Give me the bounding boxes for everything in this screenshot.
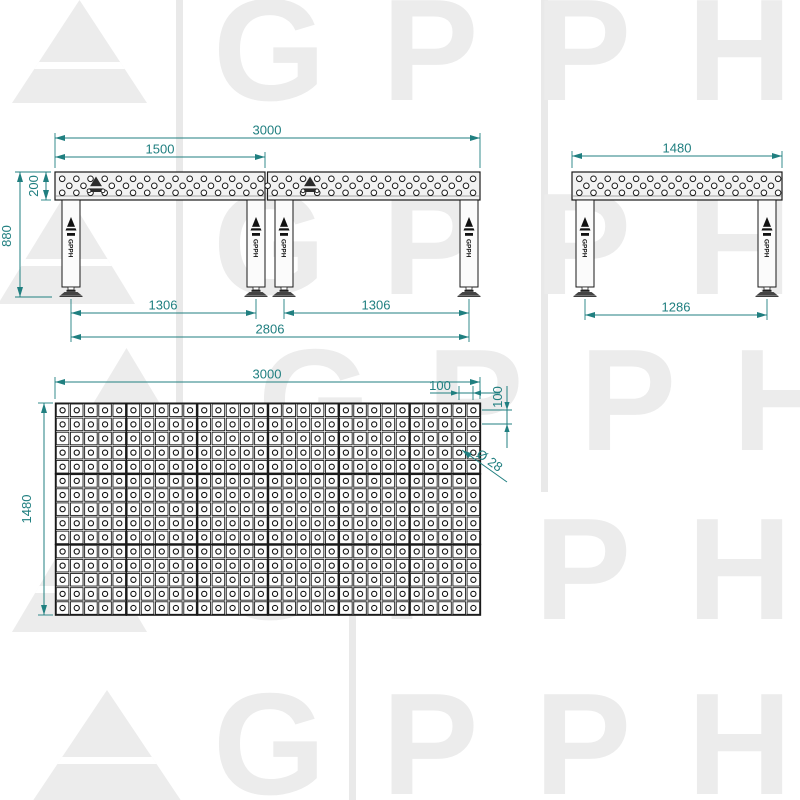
system-hole: [230, 450, 235, 455]
system-hole: [457, 408, 462, 413]
system-hole: [343, 408, 348, 413]
system-hole: [315, 450, 320, 455]
system-hole: [343, 436, 348, 441]
edge-hole: [180, 183, 186, 189]
edge-hole: [350, 183, 356, 189]
system-hole: [216, 535, 221, 540]
system-hole: [357, 492, 362, 497]
system-hole: [272, 605, 277, 610]
system-hole: [216, 478, 221, 483]
dim-label-1480-side: 1480: [663, 141, 692, 156]
edge-hole: [130, 190, 136, 196]
system-hole: [145, 422, 150, 427]
leg-logo-text: GPPH: [581, 239, 588, 258]
system-hole: [287, 450, 292, 455]
edge-hole: [357, 176, 363, 182]
leg-logo-text: GPPH: [465, 239, 472, 258]
system-hole: [258, 464, 263, 469]
system-hole: [74, 436, 79, 441]
system-hole: [131, 563, 136, 568]
system-hole: [329, 492, 334, 497]
edge-hole: [74, 190, 80, 196]
system-hole: [258, 478, 263, 483]
system-hole: [187, 577, 192, 582]
system-hole: [230, 464, 235, 469]
system-hole: [258, 591, 263, 596]
system-hole: [428, 507, 433, 512]
edge-hole: [258, 190, 264, 196]
system-hole: [287, 563, 292, 568]
system-hole: [400, 436, 405, 441]
edge-hole: [123, 183, 129, 189]
system-hole: [159, 591, 164, 596]
edge-hole: [343, 190, 349, 196]
system-hole: [400, 507, 405, 512]
edge-hole: [605, 176, 611, 182]
system-hole: [272, 436, 277, 441]
edge-hole: [421, 183, 427, 189]
edge-hole: [222, 183, 228, 189]
system-hole: [414, 591, 419, 596]
system-hole: [372, 535, 377, 540]
system-hole: [372, 591, 377, 596]
cad-sheet: GPPH GPPH GPPH GPPH GPPH: [0, 0, 800, 800]
system-hole: [357, 563, 362, 568]
system-hole: [471, 521, 476, 526]
system-hole: [74, 422, 79, 427]
system-hole: [442, 521, 447, 526]
edge-hole: [662, 190, 668, 196]
technical-drawing: GPPHGPPHGPPHGPPH: [0, 0, 800, 800]
system-hole: [400, 464, 405, 469]
system-hole: [428, 422, 433, 427]
edge-hole: [761, 190, 767, 196]
system-hole: [244, 507, 249, 512]
leg-logo-bar: [280, 233, 288, 236]
system-hole: [357, 408, 362, 413]
system-hole: [202, 591, 207, 596]
system-hole: [88, 464, 93, 469]
system-hole: [88, 422, 93, 427]
system-hole: [230, 422, 235, 427]
system-hole: [457, 605, 462, 610]
system-hole: [357, 549, 362, 554]
foot-nut: [280, 290, 289, 292]
system-hole: [131, 549, 136, 554]
edge-hole: [577, 190, 583, 196]
side-legs: GPPHGPPH: [574, 200, 779, 296]
edge-hole: [159, 190, 165, 196]
edge-hole: [598, 183, 604, 189]
system-hole: [400, 591, 405, 596]
system-hole: [230, 492, 235, 497]
system-hole: [102, 577, 107, 582]
system-hole: [187, 464, 192, 469]
edge-hole: [591, 176, 597, 182]
system-hole: [117, 422, 122, 427]
edge-hole: [173, 176, 179, 182]
system-hole: [343, 563, 348, 568]
edge-hole: [577, 176, 583, 182]
edge-hole: [87, 189, 91, 193]
edge-hole: [109, 183, 115, 189]
system-hole: [117, 436, 122, 441]
edge-hole: [101, 189, 105, 193]
system-hole: [216, 549, 221, 554]
leg-logo-text: GPPH: [67, 239, 74, 258]
system-hole: [400, 492, 405, 497]
system-hole: [117, 605, 122, 610]
system-hole: [428, 521, 433, 526]
system-hole: [244, 521, 249, 526]
system-hole: [272, 591, 277, 596]
edge-hole: [683, 183, 689, 189]
system-hole: [343, 521, 348, 526]
system-hole: [301, 549, 306, 554]
system-hole: [88, 521, 93, 526]
system-hole: [343, 535, 348, 540]
system-hole: [414, 408, 419, 413]
system-hole: [131, 577, 136, 582]
system-hole: [343, 450, 348, 455]
system-hole: [428, 605, 433, 610]
system-hole: [329, 521, 334, 526]
system-hole: [102, 422, 107, 427]
system-hole: [287, 464, 292, 469]
edge-hole: [265, 183, 271, 189]
system-hole: [145, 478, 150, 483]
edge-hole: [229, 176, 235, 182]
system-hole: [60, 422, 65, 427]
system-hole: [301, 577, 306, 582]
system-hole: [60, 464, 65, 469]
side-view: GPPHGPPH 1480 1286: [572, 141, 782, 321]
system-hole: [173, 422, 178, 427]
system-hole: [88, 408, 93, 413]
edge-hole: [229, 190, 235, 196]
edge-hole: [371, 190, 377, 196]
system-hole: [301, 535, 306, 540]
system-hole: [102, 492, 107, 497]
system-hole: [202, 422, 207, 427]
dim-label-200: 200: [26, 175, 41, 197]
system-hole: [372, 478, 377, 483]
edge-hole: [88, 176, 94, 182]
system-hole: [117, 464, 122, 469]
system-hole: [102, 464, 107, 469]
system-hole: [287, 408, 292, 413]
system-hole: [173, 436, 178, 441]
system-hole: [102, 549, 107, 554]
system-hole: [428, 591, 433, 596]
system-hole: [187, 605, 192, 610]
system-hole: [357, 422, 362, 427]
system-hole: [117, 535, 122, 540]
edge-hole: [733, 190, 739, 196]
system-hole: [357, 507, 362, 512]
system-hole: [301, 563, 306, 568]
system-hole: [414, 464, 419, 469]
system-hole: [301, 492, 306, 497]
system-hole: [471, 549, 476, 554]
system-hole: [187, 521, 192, 526]
dim-label-1306-left: 1306: [149, 298, 178, 313]
edge-hole: [137, 183, 143, 189]
foot-nut: [67, 290, 76, 292]
edge-hole: [385, 190, 391, 196]
system-hole: [315, 422, 320, 427]
system-hole: [202, 450, 207, 455]
foot-nut: [581, 290, 590, 292]
edge-hole: [74, 176, 80, 182]
system-hole: [74, 492, 79, 497]
edge-hole: [640, 183, 646, 189]
system-hole: [287, 605, 292, 610]
system-hole: [102, 591, 107, 596]
edge-hole: [392, 183, 398, 189]
system-hole: [315, 591, 320, 596]
edge-hole: [690, 190, 696, 196]
leg-logo-bar: [67, 233, 75, 236]
edge-hole: [322, 183, 328, 189]
system-hole: [244, 436, 249, 441]
system-hole: [173, 591, 178, 596]
system-hole: [457, 591, 462, 596]
system-hole: [202, 521, 207, 526]
edge-hole: [258, 176, 264, 182]
system-hole: [202, 563, 207, 568]
system-hole: [372, 549, 377, 554]
system-hole: [131, 535, 136, 540]
system-hole: [230, 478, 235, 483]
system-hole: [159, 563, 164, 568]
system-hole: [315, 549, 320, 554]
foot-nut: [252, 290, 261, 292]
system-hole: [329, 422, 334, 427]
leg-logo-slit: [464, 227, 475, 229]
system-hole: [230, 436, 235, 441]
edge-hole: [314, 176, 320, 182]
system-hole: [471, 563, 476, 568]
edge-hole: [144, 190, 150, 196]
system-hole: [258, 605, 263, 610]
system-hole: [414, 422, 419, 427]
system-hole: [386, 408, 391, 413]
system-hole: [74, 591, 79, 596]
system-hole: [216, 422, 221, 427]
edge-hole: [343, 176, 349, 182]
system-hole: [442, 591, 447, 596]
system-hole: [88, 591, 93, 596]
system-hole: [145, 549, 150, 554]
edge-hole: [655, 183, 661, 189]
dim-label-1306-right: 1306: [362, 298, 391, 313]
system-hole: [258, 577, 263, 582]
system-hole: [400, 549, 405, 554]
edge-hole: [385, 176, 391, 182]
table-leg: GPPH: [458, 200, 481, 296]
system-hole: [202, 549, 207, 554]
system-hole: [457, 577, 462, 582]
edge-hole: [633, 190, 639, 196]
system-hole: [131, 507, 136, 512]
system-hole: [287, 591, 292, 596]
system-hole: [357, 436, 362, 441]
system-hole: [74, 563, 79, 568]
system-hole: [457, 464, 462, 469]
table-leg: GPPH: [756, 200, 779, 296]
system-hole: [428, 436, 433, 441]
foot-stem: [764, 287, 770, 290]
system-hole: [117, 577, 122, 582]
system-hole: [457, 422, 462, 427]
foot-plate: [245, 292, 267, 296]
system-hole: [442, 549, 447, 554]
system-hole: [88, 436, 93, 441]
system-hole: [329, 549, 334, 554]
edge-hole: [775, 176, 781, 182]
system-hole: [258, 450, 263, 455]
system-hole: [343, 591, 348, 596]
edge-hole: [81, 183, 87, 189]
edge-hole: [329, 190, 335, 196]
system-hole: [117, 549, 122, 554]
system-hole: [173, 605, 178, 610]
system-hole: [343, 549, 348, 554]
system-hole: [386, 521, 391, 526]
edge-hole: [301, 189, 305, 193]
system-hole: [258, 408, 263, 413]
system-hole: [386, 492, 391, 497]
system-hole: [287, 492, 292, 497]
system-hole: [102, 478, 107, 483]
system-hole: [131, 464, 136, 469]
edge-hole: [662, 176, 668, 182]
edge-hole: [719, 190, 725, 196]
edge-hole: [407, 183, 413, 189]
system-hole: [216, 492, 221, 497]
system-hole: [386, 507, 391, 512]
edge-hole: [286, 190, 292, 196]
system-hole: [60, 577, 65, 582]
system-hole: [216, 450, 221, 455]
system-hole: [471, 450, 476, 455]
system-hole: [117, 563, 122, 568]
system-hole: [400, 563, 405, 568]
edge-hole: [648, 190, 654, 196]
system-hole: [187, 478, 192, 483]
system-hole: [74, 535, 79, 540]
edge-hole: [414, 190, 420, 196]
system-hole: [131, 478, 136, 483]
system-hole: [202, 605, 207, 610]
system-hole: [145, 591, 150, 596]
system-hole: [131, 521, 136, 526]
system-hole: [272, 478, 277, 483]
leg-logo-text: GPPH: [763, 239, 770, 258]
system-hole: [400, 408, 405, 413]
system-hole: [357, 464, 362, 469]
system-hole: [145, 464, 150, 469]
system-hole: [60, 478, 65, 483]
edge-hole: [740, 183, 746, 189]
edge-hole: [208, 183, 214, 189]
system-hole: [117, 408, 122, 413]
system-hole: [386, 422, 391, 427]
system-hole: [386, 464, 391, 469]
system-hole: [102, 521, 107, 526]
foot-plate: [458, 292, 480, 296]
system-hole: [471, 478, 476, 483]
system-hole: [442, 436, 447, 441]
system-hole: [442, 577, 447, 582]
system-hole: [315, 535, 320, 540]
system-hole: [315, 464, 320, 469]
edge-hole: [669, 183, 675, 189]
system-hole: [230, 521, 235, 526]
system-hole: [145, 521, 150, 526]
foot-nut: [763, 290, 772, 292]
system-hole: [187, 549, 192, 554]
system-hole: [244, 563, 249, 568]
system-hole: [315, 605, 320, 610]
system-hole: [386, 605, 391, 610]
system-hole: [414, 436, 419, 441]
system-hole: [272, 408, 277, 413]
system-hole: [442, 507, 447, 512]
dim-label-1500: 1500: [146, 142, 175, 157]
table-leg: GPPH: [60, 200, 83, 296]
leg-logo-text: GPPH: [280, 239, 287, 258]
edge-hole: [152, 183, 158, 189]
system-hole: [244, 478, 249, 483]
system-hole: [471, 605, 476, 610]
system-hole: [442, 464, 447, 469]
system-hole: [272, 577, 277, 582]
edge-hole: [591, 190, 597, 196]
system-hole: [357, 577, 362, 582]
system-hole: [74, 521, 79, 526]
system-hole: [159, 605, 164, 610]
system-hole: [287, 422, 292, 427]
edge-hole: [704, 176, 710, 182]
system-hole: [386, 450, 391, 455]
system-hole: [471, 535, 476, 540]
tabletop-logo-slit: [87, 186, 106, 188]
edge-hole: [690, 176, 696, 182]
edge-hole: [244, 190, 250, 196]
system-hole: [414, 492, 419, 497]
system-hole: [442, 563, 447, 568]
system-hole: [202, 577, 207, 582]
system-hole: [357, 450, 362, 455]
foot-stem: [466, 287, 472, 290]
system-hole: [159, 577, 164, 582]
system-hole: [457, 436, 462, 441]
system-hole: [357, 591, 362, 596]
system-hole: [131, 605, 136, 610]
edge-hole: [194, 183, 200, 189]
system-hole: [216, 563, 221, 568]
foot-stem: [281, 287, 287, 290]
system-hole: [88, 478, 93, 483]
system-hole: [428, 450, 433, 455]
system-hole: [386, 591, 391, 596]
system-hole: [428, 549, 433, 554]
system-hole: [287, 521, 292, 526]
system-hole: [102, 450, 107, 455]
system-hole: [230, 563, 235, 568]
